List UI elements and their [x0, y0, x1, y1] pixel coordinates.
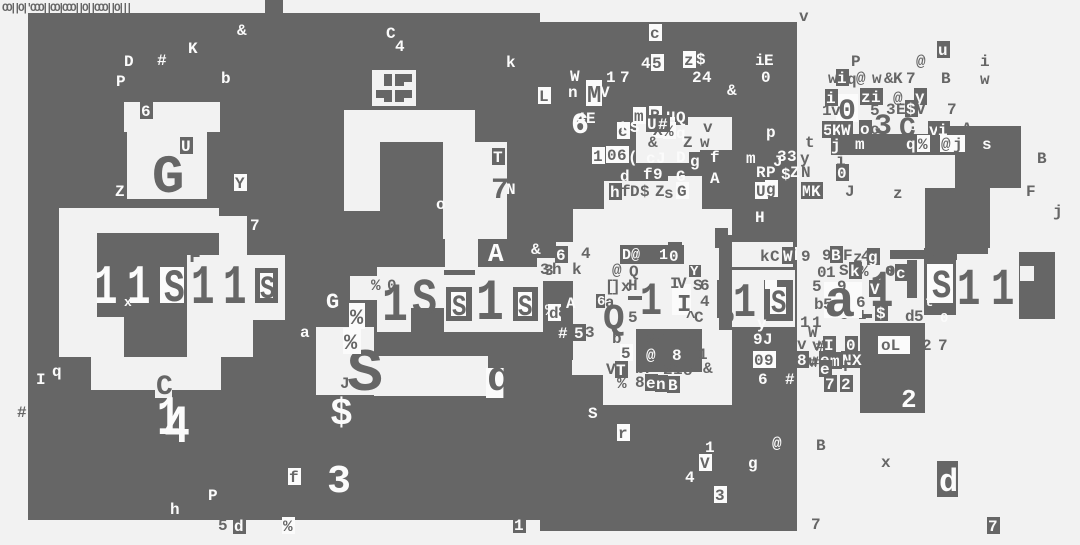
- svg-text:B: B: [1037, 150, 1047, 168]
- svg-text:x: x: [881, 454, 891, 472]
- svg-text:@: @: [916, 53, 926, 71]
- svg-text:@: @: [856, 70, 866, 88]
- svg-text:c: c: [650, 25, 660, 43]
- svg-text:q: q: [487, 355, 512, 403]
- svg-text:m: m: [746, 150, 756, 168]
- svg-text:6: 6: [141, 103, 151, 121]
- svg-text:1: 1: [800, 314, 810, 332]
- svg-text:S: S: [932, 264, 951, 309]
- svg-text:k: k: [760, 248, 770, 266]
- svg-text:U: U: [647, 116, 657, 134]
- svg-text:P: P: [851, 53, 861, 71]
- svg-text:K: K: [893, 70, 903, 88]
- svg-text:a: a: [605, 294, 615, 312]
- svg-text:%: %: [350, 306, 364, 331]
- svg-text:F: F: [1026, 183, 1036, 201]
- svg-text:G: G: [677, 183, 687, 201]
- svg-text:d: d: [939, 464, 958, 501]
- svg-text:1: 1: [514, 517, 524, 535]
- svg-text:#: #: [17, 404, 27, 422]
- svg-text:0: 0: [607, 147, 617, 165]
- svg-text:6: 6: [856, 294, 866, 312]
- svg-text:L: L: [620, 119, 630, 137]
- svg-text:V: V: [606, 361, 616, 379]
- svg-text:#: #: [785, 371, 795, 389]
- svg-text:s: s: [982, 136, 992, 154]
- svg-text:C: C: [770, 248, 780, 266]
- svg-text:r: r: [618, 425, 628, 443]
- svg-text:i: i: [837, 70, 847, 88]
- svg-text:k: k: [572, 261, 582, 279]
- svg-text:1: 1: [476, 270, 504, 336]
- svg-text:5: 5: [870, 102, 880, 120]
- svg-text:%: %: [283, 518, 293, 536]
- svg-text:e: e: [646, 375, 656, 393]
- svg-text:D: D: [676, 149, 686, 167]
- svg-text:5: 5: [914, 308, 924, 326]
- svg-text:p: p: [766, 124, 776, 142]
- svg-text:4: 4: [641, 55, 651, 73]
- svg-text:1: 1: [826, 264, 836, 282]
- svg-text:5: 5: [652, 55, 662, 73]
- svg-text:7: 7: [620, 69, 630, 87]
- svg-text:4: 4: [702, 69, 712, 87]
- svg-text:7: 7: [906, 70, 916, 88]
- svg-text:D: D: [630, 183, 640, 201]
- svg-text:$: $: [330, 393, 353, 436]
- svg-text:a: a: [300, 324, 310, 342]
- svg-text:g: g: [766, 181, 776, 199]
- svg-text:g: g: [748, 455, 758, 473]
- svg-text:g: g: [690, 153, 700, 171]
- svg-text:H: H: [755, 209, 765, 227]
- svg-text:7: 7: [250, 217, 260, 235]
- svg-text:L: L: [539, 88, 549, 106]
- svg-text:0: 0: [886, 263, 896, 281]
- svg-text:8: 8: [797, 352, 807, 370]
- svg-text:2: 2: [841, 376, 851, 394]
- svg-text:1: 1: [957, 261, 980, 320]
- svg-text:9: 9: [753, 331, 763, 349]
- svg-text:t: t: [805, 134, 815, 152]
- svg-text:0: 0: [669, 248, 679, 266]
- svg-text:Z: Z: [115, 183, 125, 201]
- svg-text:w: w: [980, 71, 990, 89]
- svg-text:J: J: [845, 183, 855, 201]
- svg-text:S: S: [260, 271, 275, 307]
- svg-text:B: B: [816, 437, 826, 455]
- svg-text:B: B: [941, 70, 951, 88]
- svg-text:A: A: [488, 239, 504, 269]
- svg-text:2: 2: [901, 385, 917, 415]
- svg-text:W: W: [841, 122, 851, 140]
- svg-text:2: 2: [692, 69, 702, 87]
- svg-text:%: %: [344, 331, 358, 356]
- svg-text:4: 4: [685, 469, 695, 487]
- svg-text:%: %: [859, 263, 869, 281]
- svg-text:oL: oL: [881, 337, 900, 355]
- svg-text:K: K: [188, 40, 198, 58]
- svg-text:D: D: [124, 53, 134, 71]
- svg-text:i: i: [980, 53, 990, 71]
- svg-text:9: 9: [837, 278, 847, 296]
- svg-text:i: i: [836, 152, 846, 170]
- svg-text:3: 3: [327, 460, 351, 505]
- svg-text:3: 3: [715, 487, 725, 505]
- svg-text:E: E: [764, 52, 774, 70]
- svg-text:&: &: [531, 241, 541, 259]
- svg-text:A: A: [710, 170, 720, 188]
- svg-text:9: 9: [764, 352, 774, 370]
- svg-text:&: &: [703, 360, 713, 378]
- svg-text:1: 1: [991, 261, 1014, 320]
- svg-text:4: 4: [395, 38, 405, 56]
- svg-text:F: F: [189, 246, 201, 269]
- svg-text:o: o: [436, 196, 446, 214]
- svg-text:1: 1: [733, 277, 756, 331]
- svg-text:q: q: [52, 363, 62, 381]
- svg-text:9: 9: [801, 248, 811, 266]
- svg-text:1: 1: [593, 148, 603, 166]
- svg-text:6: 6: [758, 371, 768, 389]
- svg-text:s: s: [664, 185, 674, 203]
- svg-text:z: z: [684, 52, 694, 70]
- svg-text:3: 3: [540, 261, 550, 279]
- svg-text:%: %: [918, 136, 928, 154]
- svg-text:J: J: [773, 153, 783, 171]
- svg-text:2: 2: [922, 337, 932, 355]
- svg-text:h: h: [552, 261, 562, 279]
- svg-text:n: n: [568, 84, 578, 102]
- svg-text:9: 9: [725, 309, 735, 327]
- svg-text:#: #: [810, 354, 820, 372]
- svg-text:w: w: [872, 70, 882, 88]
- svg-text:0: 0: [940, 311, 948, 327]
- svg-text:F: F: [843, 358, 853, 376]
- svg-text:H: H: [686, 331, 696, 349]
- svg-text:X: X: [852, 352, 862, 370]
- svg-text:S: S: [588, 405, 598, 423]
- svg-text:c: c: [896, 265, 906, 283]
- svg-text:U: U: [756, 183, 766, 201]
- svg-text:1: 1: [94, 257, 118, 321]
- svg-text:w: w: [700, 134, 710, 152]
- svg-text:1: 1: [659, 247, 668, 264]
- svg-text:m: m: [855, 136, 865, 154]
- svg-text:#: #: [157, 52, 167, 70]
- svg-text:T: T: [493, 149, 503, 167]
- svg-text:7: 7: [811, 516, 821, 534]
- svg-text:7: 7: [988, 518, 998, 536]
- svg-text:3: 3: [927, 248, 937, 266]
- svg-text:S: S: [518, 291, 532, 325]
- svg-text:$: $: [696, 51, 706, 69]
- svg-text:f: f: [289, 469, 299, 487]
- svg-text:V: V: [677, 275, 687, 293]
- svg-text:k: k: [506, 54, 516, 72]
- svg-text:S: S: [412, 272, 437, 331]
- svg-text:I: I: [36, 371, 46, 389]
- svg-text:D@: D@: [622, 247, 640, 264]
- svg-text:7: 7: [947, 101, 957, 119]
- svg-text:S: S: [452, 291, 466, 325]
- svg-text:3: 3: [886, 101, 896, 119]
- svg-text:5: 5: [621, 345, 631, 363]
- svg-text:5: 5: [823, 296, 833, 314]
- svg-text:S: S: [164, 264, 185, 316]
- svg-text:&: &: [237, 22, 247, 40]
- svg-text:f: f: [710, 149, 720, 167]
- svg-text:d: d: [234, 518, 244, 536]
- svg-text:U: U: [181, 138, 191, 156]
- svg-text:%: %: [371, 277, 381, 295]
- svg-text:J: J: [340, 375, 350, 393]
- svg-text:v: v: [812, 337, 822, 355]
- svg-text:H: H: [628, 277, 638, 295]
- svg-text:1: 1: [223, 257, 247, 321]
- svg-text:5: 5: [628, 309, 638, 327]
- svg-text:5: 5: [574, 325, 584, 343]
- svg-text:7: 7: [825, 376, 835, 394]
- svg-text:OO||O|'OOO||OO|OOO||O||OOO||O|: OO||O|'OOO||OO|OOO||O||OOO||O|||: [2, 3, 130, 15]
- svg-text:1: 1: [606, 69, 616, 87]
- svg-text:6: 6: [617, 147, 627, 165]
- svg-text:c: c: [870, 121, 880, 139]
- svg-text:&: &: [727, 82, 737, 100]
- svg-text:q: q: [906, 136, 916, 154]
- svg-text:j: j: [953, 136, 963, 154]
- svg-text:0: 0: [761, 69, 771, 87]
- svg-text:j: j: [1053, 203, 1063, 221]
- svg-text:8: 8: [558, 304, 568, 322]
- svg-text:3: 3: [585, 324, 595, 342]
- svg-text:W: W: [783, 248, 793, 266]
- svg-text:h: h: [610, 184, 620, 202]
- svg-text:0: 0: [754, 352, 764, 370]
- svg-text:V: V: [700, 455, 710, 473]
- svg-text:0: 0: [387, 277, 397, 295]
- svg-text:P: P: [116, 73, 126, 91]
- svg-text:1: 1: [812, 314, 822, 332]
- svg-text:#: #: [558, 325, 568, 343]
- svg-text:B: B: [668, 377, 678, 395]
- svg-text:$: $: [876, 305, 886, 323]
- svg-text:4: 4: [576, 110, 586, 128]
- svg-text:Z: Z: [790, 164, 800, 182]
- svg-text:v: v: [831, 102, 841, 120]
- svg-text:4: 4: [581, 245, 591, 263]
- svg-text:C: C: [694, 309, 704, 327]
- svg-text:n: n: [656, 376, 666, 394]
- svg-text:9: 9: [653, 166, 663, 184]
- svg-text:J: J: [763, 331, 773, 349]
- svg-text:G: G: [326, 290, 339, 315]
- svg-text:N: N: [801, 164, 811, 182]
- svg-text:1: 1: [127, 257, 151, 321]
- svg-text:%: %: [617, 375, 627, 393]
- svg-text:R: R: [756, 164, 766, 182]
- svg-text:Y: Y: [235, 175, 245, 193]
- svg-text:V: V: [870, 281, 880, 299]
- svg-text:x: x: [124, 295, 132, 310]
- svg-text:@: @: [941, 136, 951, 154]
- svg-text:V: V: [916, 101, 926, 119]
- svg-text:E: E: [586, 110, 596, 128]
- svg-text:u: u: [938, 42, 948, 60]
- svg-text:P: P: [208, 487, 218, 505]
- svg-text:K: K: [811, 183, 821, 201]
- svg-text:5: 5: [218, 517, 228, 535]
- svg-text:@: @: [772, 435, 782, 453]
- svg-text:N: N: [506, 181, 516, 199]
- svg-text:S: S: [630, 119, 640, 137]
- svg-text:$: $: [906, 101, 916, 119]
- svg-text:z: z: [893, 185, 903, 203]
- svg-text:4: 4: [164, 397, 190, 459]
- svg-text:5: 5: [812, 278, 822, 296]
- svg-text:$: $: [640, 183, 650, 201]
- svg-text:o: o: [683, 362, 693, 380]
- svg-text:1: 1: [640, 275, 662, 328]
- svg-text:v: v: [799, 8, 809, 26]
- svg-text:G: G: [152, 148, 184, 209]
- svg-text:8: 8: [635, 374, 645, 392]
- svg-text:(: (: [628, 149, 638, 167]
- svg-text:9: 9: [866, 353, 876, 371]
- svg-text:#: #: [658, 116, 668, 134]
- svg-text:E: E: [896, 101, 906, 119]
- svg-text:f: f: [643, 166, 653, 184]
- svg-text:7: 7: [938, 337, 948, 355]
- svg-text:g: g: [868, 249, 878, 267]
- svg-text:S: S: [771, 285, 786, 321]
- svg-text:h: h: [170, 501, 180, 519]
- svg-text:t: t: [925, 295, 933, 311]
- svg-text:b: b: [221, 70, 231, 88]
